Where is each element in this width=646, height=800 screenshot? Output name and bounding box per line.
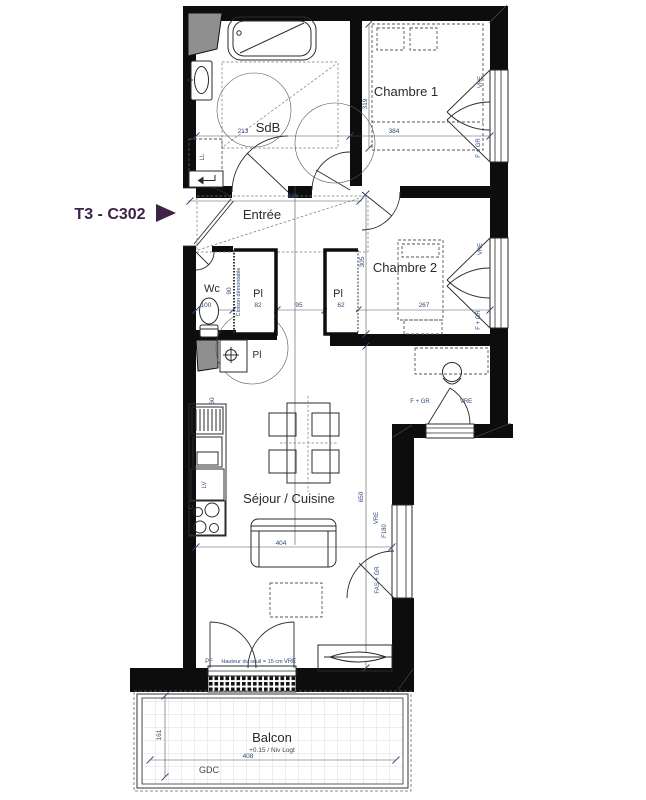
desk-chambre2-nook	[415, 348, 488, 384]
door-wc	[196, 252, 214, 270]
title-arrow-icon	[156, 204, 176, 222]
plan-title: T3 - C302	[74, 206, 145, 223]
balcony-french-door	[208, 622, 296, 692]
room-label-sdb: SdB	[256, 120, 281, 135]
dim-placard-entree: 82	[254, 302, 262, 309]
dim-placard-chambre2: 62	[337, 302, 345, 309]
room-label-entree: Entrée	[243, 207, 281, 222]
dim-couloir: 95	[295, 302, 303, 309]
washing-machine-label: LL	[200, 153, 206, 160]
opening-vre-chambre2: VRE	[478, 243, 484, 255]
dim-chambre1-depth: 319	[362, 98, 369, 109]
shaft-top-left	[188, 13, 222, 56]
dim-kitchen-depth: 60	[209, 397, 216, 405]
seuil-note: Hauteur du seuil = 15 cm	[221, 659, 283, 665]
chair	[269, 450, 296, 473]
opening-fasgr-sejour-door: FAS + GR	[375, 566, 381, 594]
closet-label-entree: Pl	[253, 288, 263, 300]
floorplan-page: T3 - C302 SdB Chambre 1 Entrée Wc Chambr…	[0, 0, 646, 800]
threshold-hatch	[208, 676, 296, 692]
dim-chambre2-width: 267	[419, 302, 430, 309]
room-label-chambre2: Chambre 2	[373, 260, 437, 275]
hob-label: C	[189, 504, 195, 509]
turning-circle-entree	[295, 103, 375, 183]
gdc-label: GDC	[199, 765, 220, 775]
opening-fgr-nook: F + GR	[410, 399, 430, 405]
entry-arrow-icon	[189, 171, 223, 187]
opening-vre-sejour-door: VRE	[374, 512, 380, 524]
opening-vre-nook: VRE	[460, 399, 472, 405]
dim-sejour-width: 404	[276, 540, 287, 547]
opening-pf-balcony-door: PF	[205, 659, 213, 665]
bathtub	[228, 17, 316, 60]
room-label-wc: Wc	[204, 283, 220, 295]
walls	[130, 5, 513, 692]
chair	[269, 413, 296, 436]
room-label-chambre1: Chambre 1	[374, 84, 438, 99]
floorplan-svg: T3 - C302 SdB Chambre 1 Entrée Wc Chambr…	[0, 0, 646, 800]
opening-fgr-chambre1: F + GR	[476, 138, 482, 158]
dim-sejour-depth: 650	[358, 491, 365, 502]
closet-label-technical: Pl	[253, 350, 262, 361]
partition-note: Cloison démontable	[236, 268, 242, 317]
balcon-level-note: +0.15 / Niv Logt	[249, 747, 295, 754]
dim-wc-width: 100	[201, 302, 212, 309]
opening-vre-chambre1: VRE	[478, 76, 484, 88]
dining-set	[269, 396, 339, 492]
dishwasher-label: LV	[202, 482, 208, 489]
dim-chambre2-depth: 305	[359, 256, 366, 267]
window-sejour-nook	[426, 388, 474, 438]
room-label-sejour: Séjour / Cuisine	[243, 491, 335, 506]
door-chambre1	[312, 152, 350, 190]
chair	[312, 413, 339, 436]
shaft-mid-left	[196, 340, 218, 371]
dim-chambre1-width: 384	[389, 128, 400, 135]
closet-label-chambre2: Pl	[333, 288, 343, 300]
dim-balcon-width: 408	[243, 753, 254, 760]
entree-zone	[197, 196, 368, 252]
opening-fgr-chambre2: F + GR	[476, 310, 482, 330]
sofa	[251, 519, 336, 567]
chair	[312, 450, 339, 473]
dim-wc-depth: 90	[226, 287, 233, 295]
coffee-table	[270, 583, 322, 617]
dim-entree-width: 326	[288, 193, 299, 200]
radiator	[318, 645, 392, 671]
closet-technical	[220, 340, 247, 372]
bed-chambre2	[398, 240, 443, 334]
opening-vre-balcony-door: VRE	[284, 659, 296, 665]
opening-f180-sejour-door: F180	[382, 524, 388, 538]
dim-balcon-depth: 161	[156, 729, 163, 740]
dim-sdb-width: 213	[238, 128, 249, 135]
room-label-balcon: Balcon	[252, 730, 292, 745]
